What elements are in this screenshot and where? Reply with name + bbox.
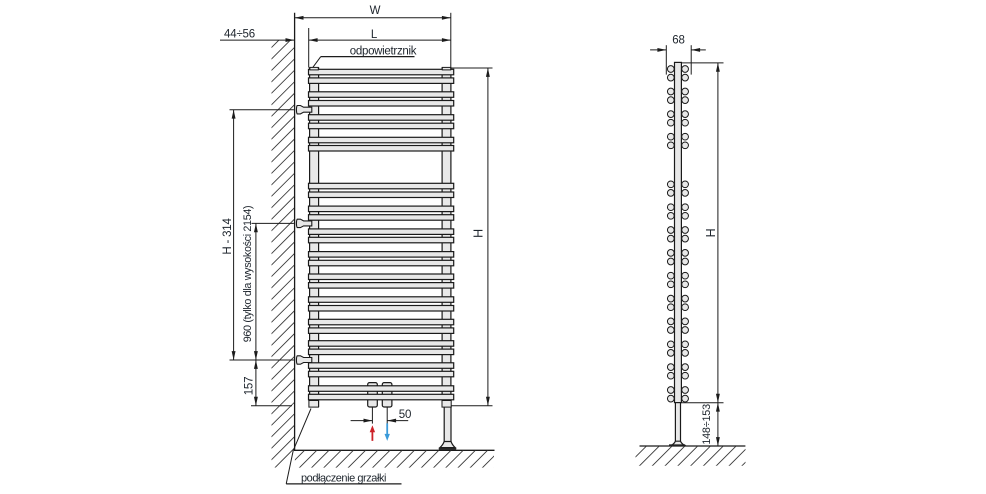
svg-text:odpowietrznik: odpowietrznik <box>350 45 417 57</box>
svg-text:W: W <box>370 5 381 17</box>
svg-text:157: 157 <box>243 377 255 396</box>
svg-text:50: 50 <box>399 409 411 421</box>
svg-text:H - 314: H - 314 <box>222 218 234 255</box>
svg-text:H: H <box>472 229 486 238</box>
svg-text:44÷56: 44÷56 <box>224 28 255 40</box>
svg-text:H: H <box>704 228 718 237</box>
svg-text:L: L <box>371 29 378 41</box>
svg-text:148÷153: 148÷153 <box>701 404 713 445</box>
svg-text:68: 68 <box>672 34 684 46</box>
svg-text:960 (tylko dla wysokości 2154): 960 (tylko dla wysokości 2154) <box>242 206 254 343</box>
svg-text:podłączenie grzałki: podłączenie grzałki <box>301 473 386 485</box>
